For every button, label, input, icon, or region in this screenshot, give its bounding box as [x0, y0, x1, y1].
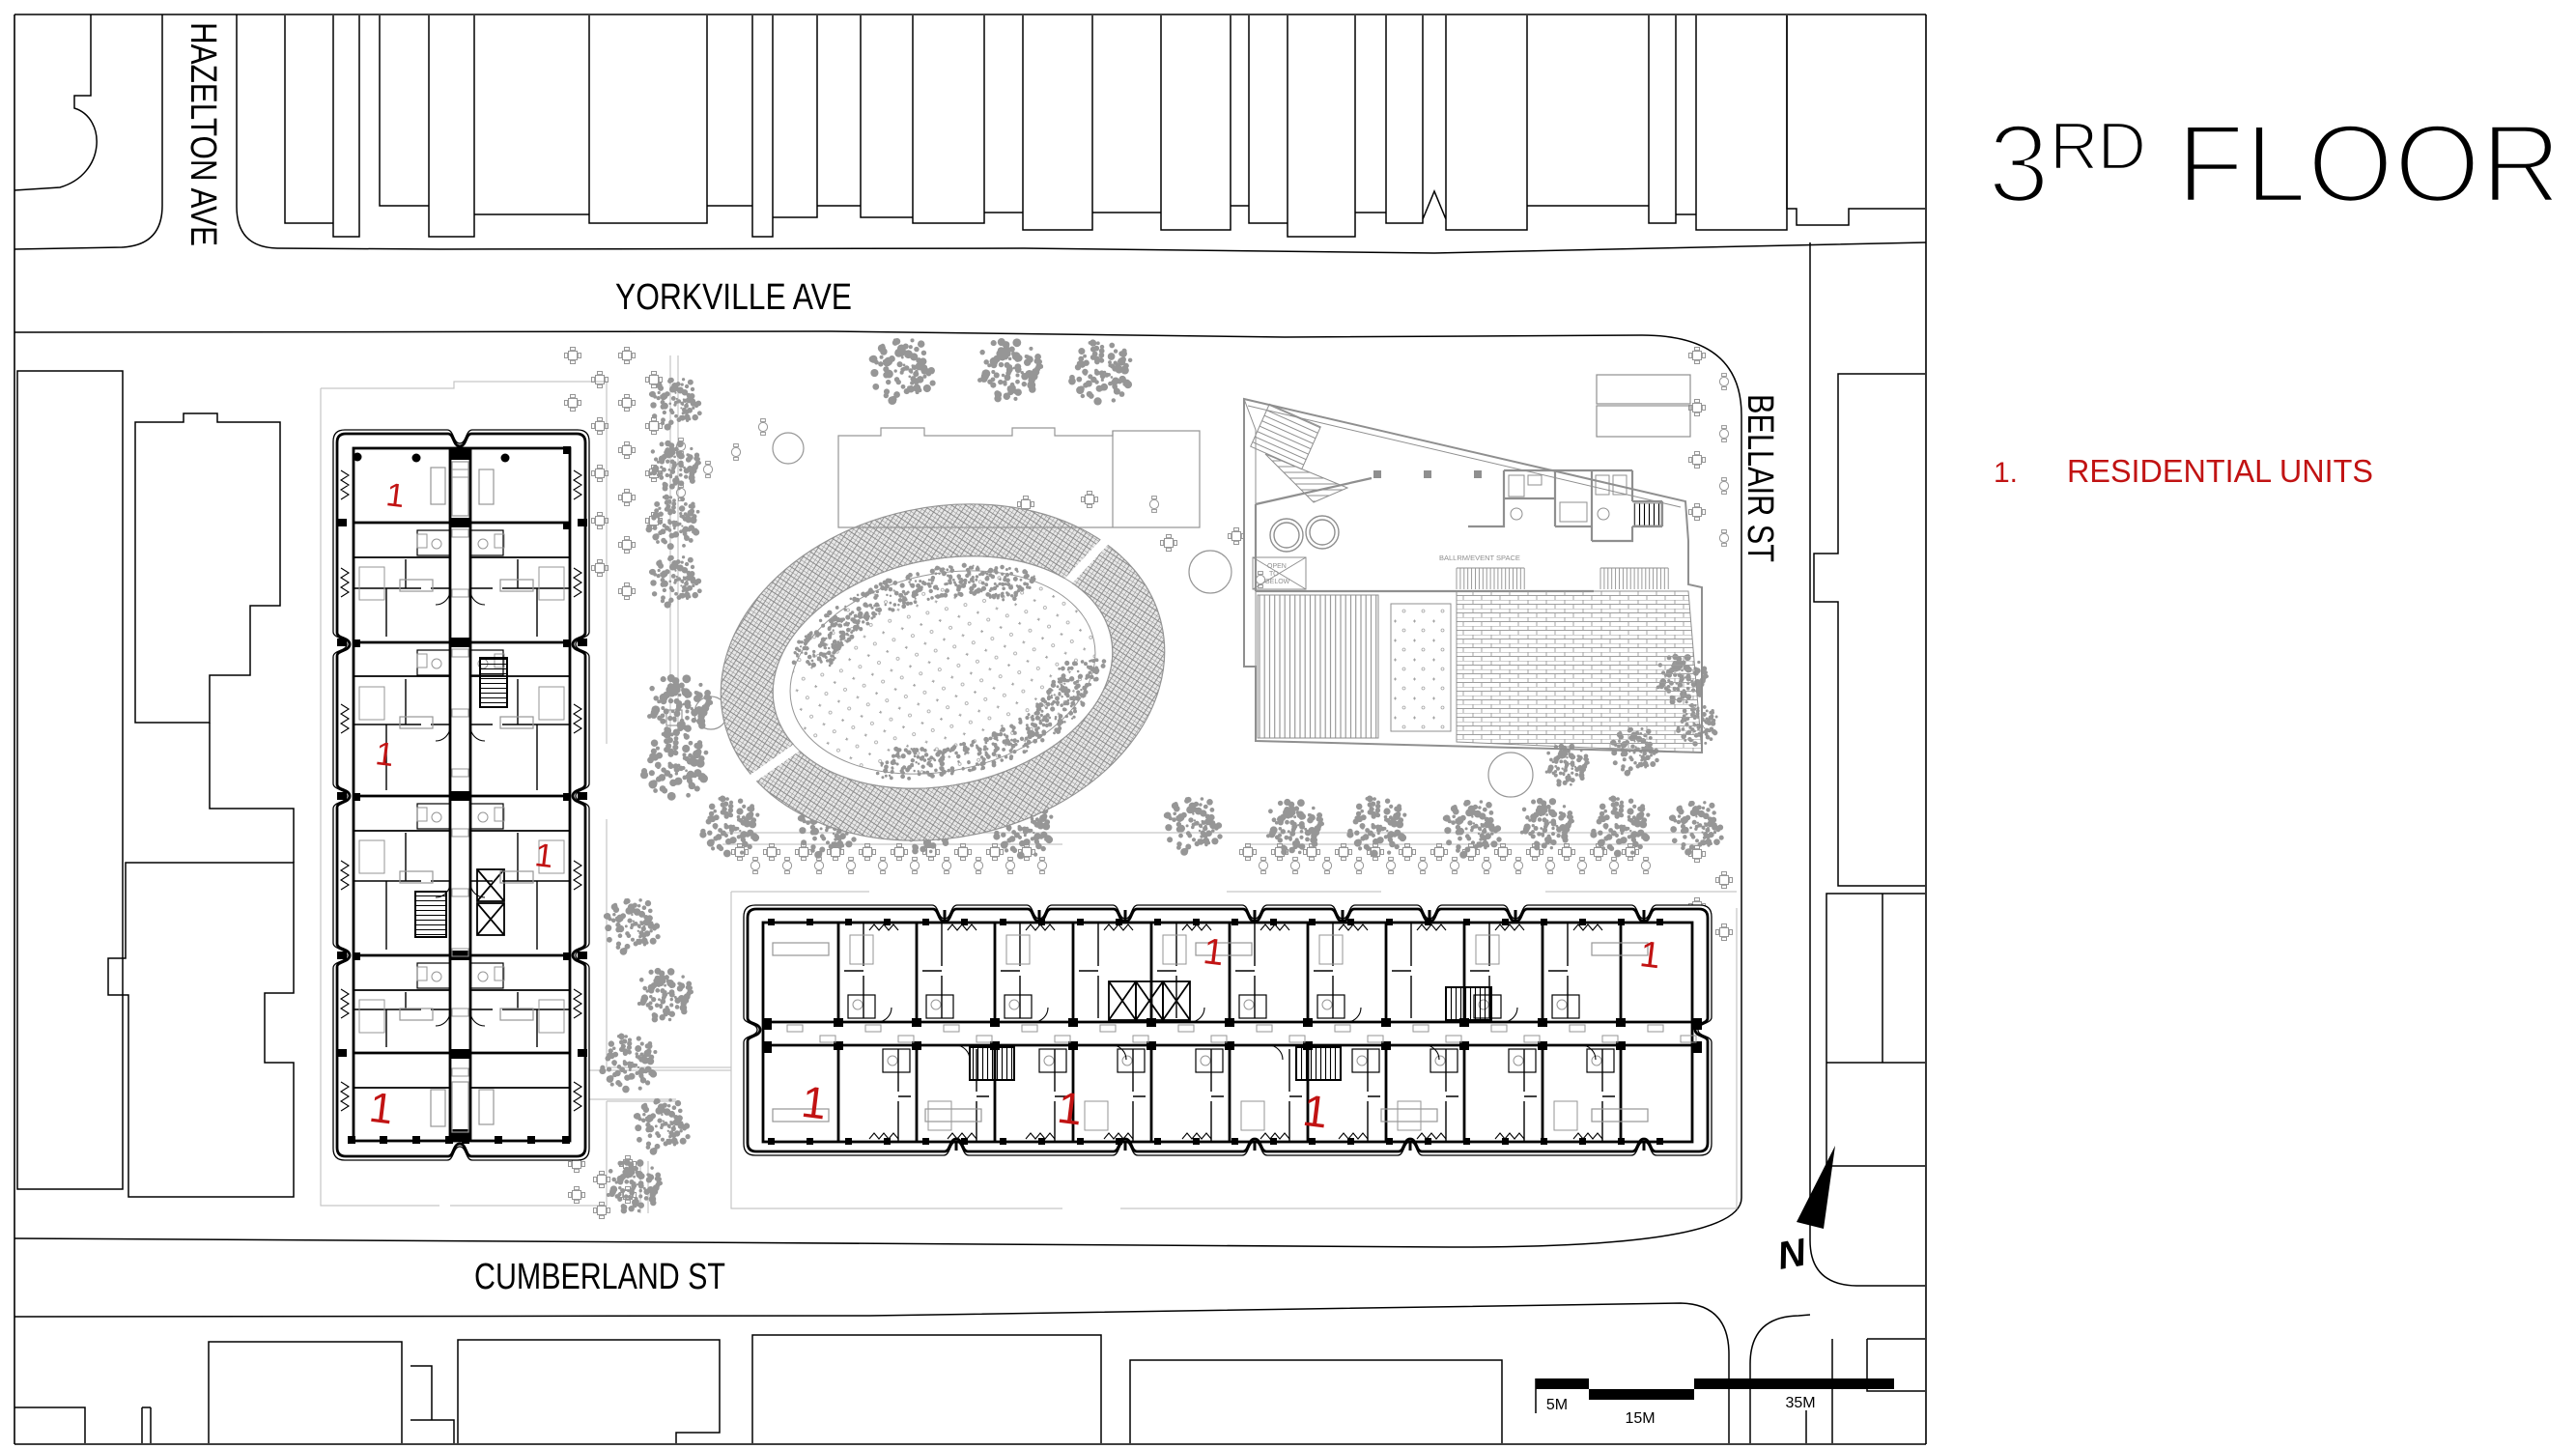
svg-text:1.: 1. [1994, 457, 2018, 489]
svg-text:YORKVILLE AVE: YORKVILLE AVE [615, 277, 852, 318]
svg-text:OPEN: OPEN [1267, 563, 1287, 570]
svg-text:TO: TO [1269, 571, 1279, 578]
svg-text:15M: 15M [1625, 1410, 1655, 1427]
svg-text:5M: 5M [1546, 1397, 1568, 1413]
svg-text:BELLAIR ST: BELLAIR ST [1740, 394, 1780, 562]
svg-text:CUMBERLAND ST: CUMBERLAND ST [474, 1257, 725, 1297]
svg-text:BALLRM/EVENT SPACE: BALLRM/EVENT SPACE [1439, 554, 1520, 562]
svg-text:BELOW: BELOW [1265, 579, 1290, 585]
svg-text:HAZELTON AVE: HAZELTON AVE [183, 22, 223, 246]
svg-text:35M: 35M [1785, 1395, 1815, 1411]
svg-text:RESIDENTIAL UNITS: RESIDENTIAL UNITS [2067, 453, 2373, 489]
